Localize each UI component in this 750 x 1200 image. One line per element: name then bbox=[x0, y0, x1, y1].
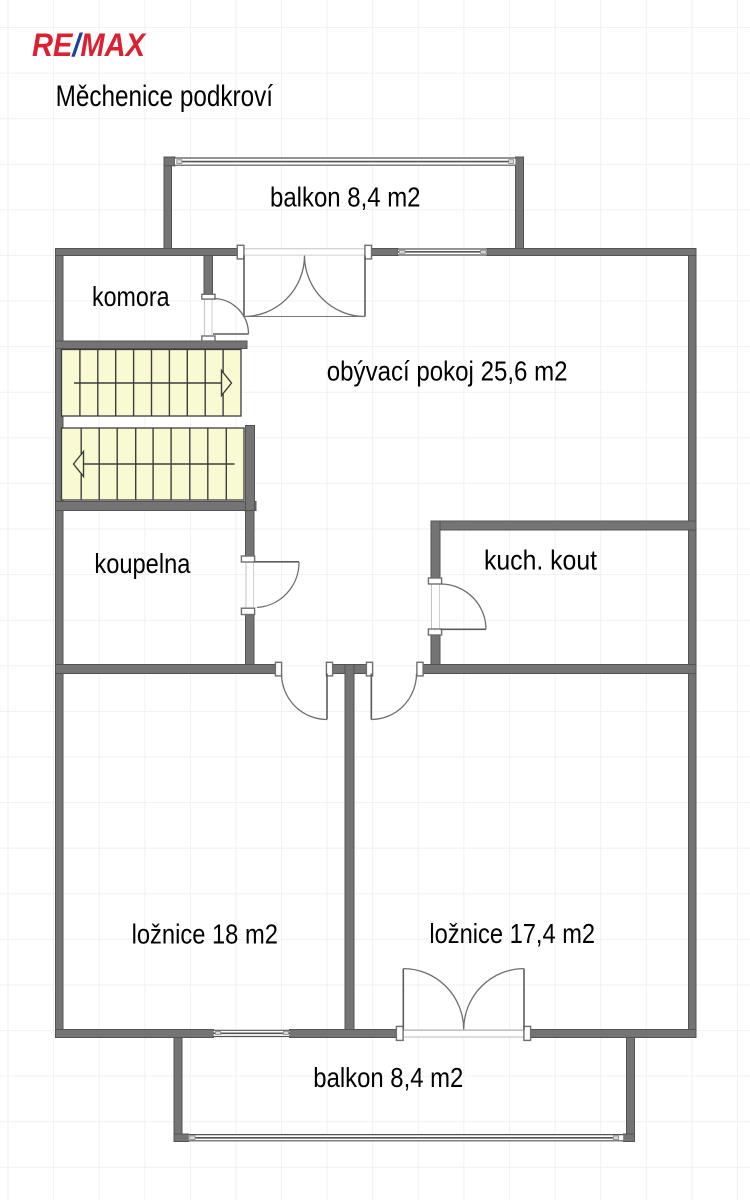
svg-text:komora: komora bbox=[92, 281, 170, 312]
svg-text:RE/MAX: RE/MAX bbox=[32, 27, 147, 63]
svg-text:koupelna: koupelna bbox=[94, 548, 191, 579]
svg-text:ložnice 17,4 m2: ložnice 17,4 m2 bbox=[429, 918, 595, 949]
svg-text:kuch. kout: kuch. kout bbox=[484, 545, 597, 576]
svg-text:Měchenice podkroví: Měchenice podkroví bbox=[56, 80, 274, 113]
svg-text:ložnice 18 m2: ložnice 18 m2 bbox=[132, 919, 278, 950]
svg-text:obývací pokoj 25,6 m2: obývací pokoj 25,6 m2 bbox=[327, 356, 568, 387]
svg-text:balkon 8,4 m2: balkon 8,4 m2 bbox=[270, 182, 421, 213]
svg-text:balkon 8,4 m2: balkon 8,4 m2 bbox=[313, 1062, 463, 1093]
